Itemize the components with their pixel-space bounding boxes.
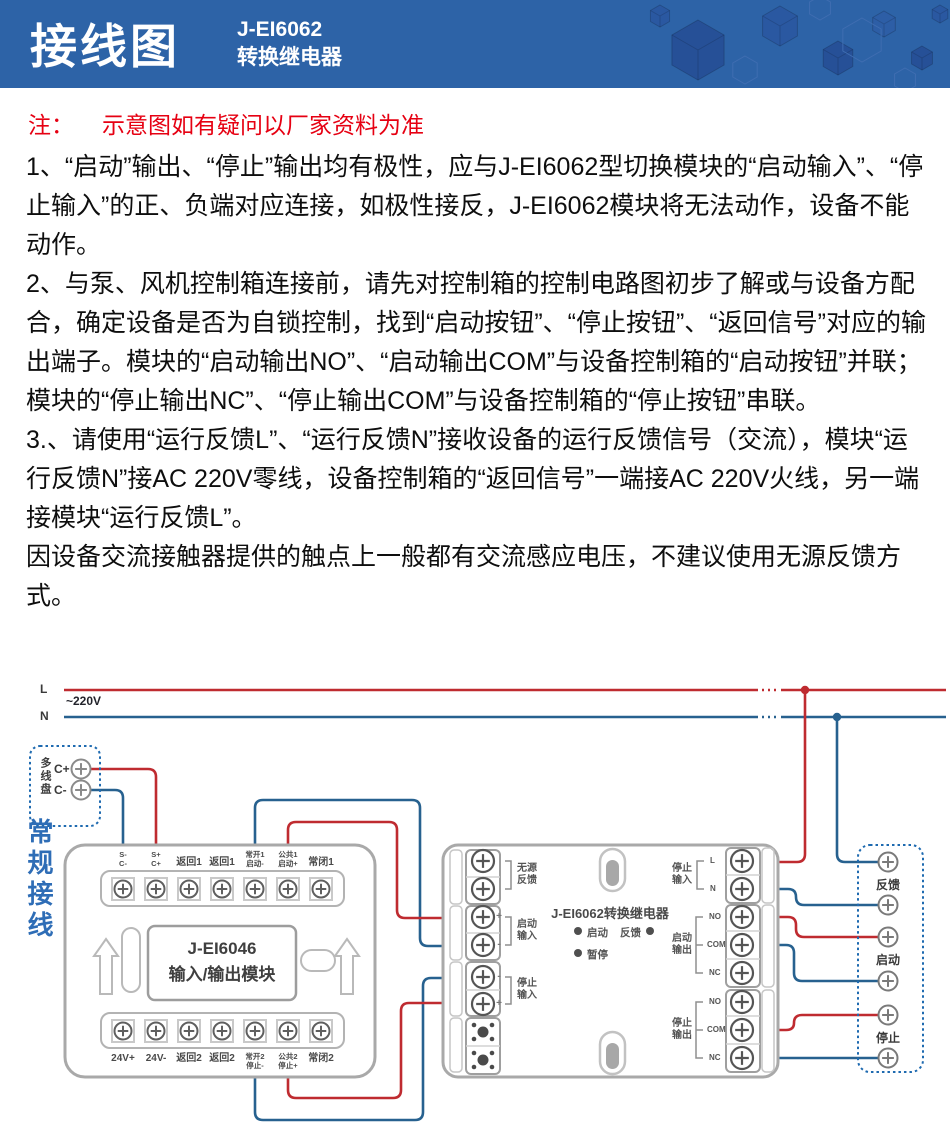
passive-feedback-label: 无源反馈 [517,863,537,887]
screw-terminal-icon [472,878,494,900]
polarity-sign: - [494,971,504,982]
screw-terminal-icon [72,781,91,800]
screw-terminal-icon [879,1006,898,1025]
screw-terminal-icon [244,878,266,900]
terminal-label: 24V+ [106,1053,140,1075]
pin-com-label: COM [707,940,726,949]
screw-terminal-icon [731,934,753,956]
screw-terminal-icon [731,906,753,928]
led-pause-label: 暂停 [587,947,608,962]
screw-terminal-icon [731,1019,753,1041]
pin-no-label: NO [709,912,721,921]
screw-terminal-icon [472,934,494,956]
screw-terminal-icon [472,906,494,928]
stop-input-label: 停止输入 [517,978,537,1002]
terminal-label: 常闭2 [304,1053,338,1075]
terminal-label: 公共2停止+ [271,1053,305,1075]
terminal-label: 返回1 [205,846,239,868]
screw-terminal-icon [472,850,494,872]
screw-terminal-icon [879,853,898,872]
voltage-label: ~220V [66,694,101,708]
terminal-label: 返回2 [172,1053,206,1075]
screw-terminal-icon [879,972,898,991]
polarity-sign: + [494,911,504,922]
screw-terminal-icon [879,896,898,915]
screw-terminal-icon [472,993,494,1015]
screw-terminal-icon [112,1020,134,1042]
led-start-label: 启动 [587,925,608,940]
polarity-sign: + [494,998,504,1009]
screw-terminal-icon [310,878,332,900]
screw-terminal-icon [112,878,134,900]
terminal-label: 24V- [139,1053,173,1075]
screw-terminal-icon [145,878,167,900]
polarity-sign: - [494,939,504,950]
screw-terminal-icon [211,1020,233,1042]
screw-terminal-icon [310,1020,332,1042]
screw-terminal-icon [731,1047,753,1069]
power-lines [64,686,946,721]
terminal-label: S+C+ [139,846,173,868]
normal-wiring-label: 常规接线 [21,818,58,942]
terminal-label: 返回2 [205,1053,239,1075]
pin-l-label: L [710,856,715,865]
screw-terminal-icon [178,878,200,900]
terminal-label: 公共1启动+ [271,846,305,868]
screw-terminal-icon [731,878,753,900]
terminal-label: 常开2停止- [238,1053,272,1075]
pin-no-label: NO [709,997,721,1006]
led-feedback-label: 反馈 [620,925,641,940]
wiring-instruction-page: 接线图 J-EI6062 转换继电器 注：示意图如有疑问以厂家资料为准 1、“启… [0,0,950,1147]
screw-terminal-icon [244,1020,266,1042]
screw-terminal-icon [472,966,494,988]
screw-terminal-icon [879,928,898,947]
screw-terminal-icon [211,878,233,900]
pin-nc-label: NC [709,968,721,977]
multiline-panel-label: 多线盘 [37,757,53,796]
screw-terminal-icon [277,1020,299,1042]
start-input-label: 启动输入 [517,919,537,943]
device-start-label: 启动 [868,951,908,968]
screw-terminal-icon [277,878,299,900]
start-output-label: 启动输出 [658,933,692,957]
line-n-label: N [40,709,49,723]
pin-com-label: COM [707,1025,726,1034]
screw-terminal-icon [731,850,753,872]
terminal-label: 返回1 [172,846,206,868]
terminal-label: 常闭1 [304,846,338,868]
device-feedback-label: 反馈 [868,876,908,893]
terminal-label: 常开1启动- [238,846,272,868]
terminal-label: S-C- [106,846,140,868]
pin-nc-label: NC [709,1053,721,1062]
screw-terminal-icon [731,962,753,984]
screw-terminal-icon [879,1049,898,1068]
screw-terminal-icon [731,991,753,1013]
stop-output-label: 停止输出 [658,1018,692,1042]
wiring-diagram-canvas [0,0,950,1147]
device-stop-label: 停止 [868,1029,908,1046]
screw-terminal-icon [178,1020,200,1042]
screw-terminal-icon [145,1020,167,1042]
relay-module-outline [443,845,778,1077]
pin-n-label: N [710,884,716,893]
ac-stop-input-label: 停止输入 [658,863,692,887]
c-plus-label: C+ [54,762,70,776]
line-l-label: L [40,682,47,696]
c-minus-label: C- [54,783,67,797]
io-module-name: J-EI6046 输入/输出模块 [148,936,296,988]
screw-terminal-icon [72,760,91,779]
relay-module-name: J-EI6062转换继电器 [510,903,710,922]
